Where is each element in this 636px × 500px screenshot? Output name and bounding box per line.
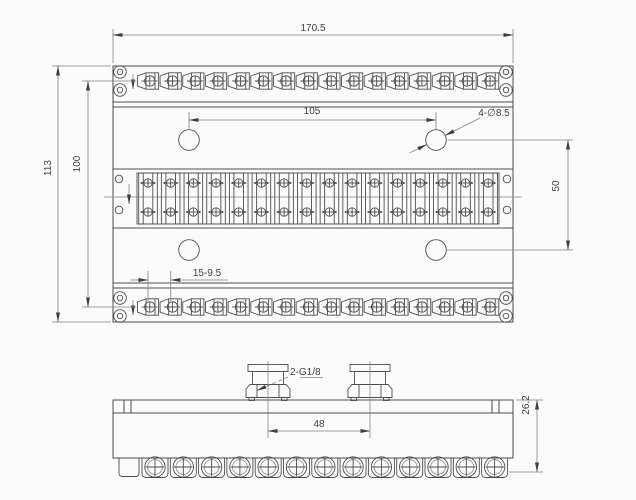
front-view-labels: 2-G1/8 48 26.2 <box>290 367 532 430</box>
dim-hole-spacing-horizontal: 105 <box>304 106 321 117</box>
drawing-canvas: 170.5 113 100 105 4-∅8.5 50 15-9.5 <box>0 0 636 500</box>
callout-ports: 2-G1/8 <box>290 367 321 378</box>
dim-front-height: 26.2 <box>521 395 532 415</box>
dim-overall-width: 170.5 <box>300 23 325 34</box>
flow-direction-arrows <box>129 74 133 315</box>
dim-overall-height: 113 <box>43 160 54 176</box>
top-fitting-row <box>137 73 498 89</box>
callout-mounting-holes: 4-∅8.5 <box>478 108 510 119</box>
dim-fitting-pitch: 15-9.5 <box>193 268 222 279</box>
dim-hole-spacing-vertical: 50 <box>551 180 562 192</box>
dim-row-spacing: 100 <box>72 155 83 172</box>
dim-port-spacing: 48 <box>313 419 325 430</box>
body-outline <box>113 66 513 322</box>
top-view-body <box>113 66 513 322</box>
bottom-fitting-row <box>137 299 498 315</box>
mounting-holes <box>179 130 447 261</box>
front-view: 2-G1/8 48 26.2 <box>113 361 543 478</box>
top-view: 170.5 113 100 105 4-∅8.5 50 15-9.5 <box>43 23 573 322</box>
terminal-block <box>137 173 499 224</box>
top-view-labels: 170.5 113 100 105 4-∅8.5 50 15-9.5 <box>43 23 562 279</box>
bottom-screw-row <box>119 457 508 478</box>
engineering-drawing: 170.5 113 100 105 4-∅8.5 50 15-9.5 <box>0 0 636 500</box>
